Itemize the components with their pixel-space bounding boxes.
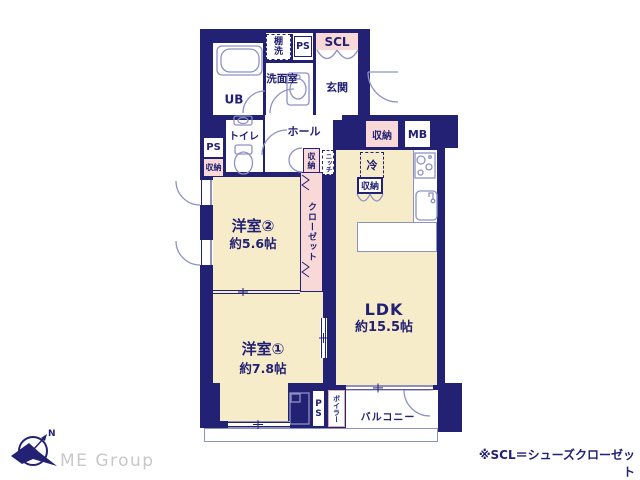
ldk-name: LDK: [365, 301, 404, 319]
shelf-washer-space: 棚 洗: [266, 34, 291, 60]
shelf-label: 棚: [274, 37, 283, 47]
kitchen-counter-return: [357, 222, 437, 252]
compass-n-label: N: [48, 429, 56, 439]
scl-label-box: SCL: [316, 33, 358, 50]
entrance-door-arc: [368, 72, 398, 102]
pipe-space-top: PS: [294, 36, 312, 57]
storage-hall: 収納: [303, 148, 320, 174]
washroom-label: 洗面室: [266, 74, 298, 86]
room-toilet: [226, 120, 263, 172]
hall-label: ホール: [288, 126, 321, 138]
washer-label: 洗: [274, 47, 283, 57]
west-window-arcs: [176, 181, 200, 265]
compass-logo: N: [11, 429, 57, 466]
bedroom2-name: 洋室②: [232, 218, 275, 235]
storage-left: 収納: [203, 158, 224, 177]
toilet-label: トイレ: [229, 132, 259, 143]
ldk-size: 約15.5帖: [355, 321, 413, 335]
unit-bath-label: UB: [225, 93, 244, 106]
pipe-space-left: PS: [203, 137, 224, 158]
storage-kitchen: 収納: [357, 177, 383, 194]
bedroom2-size: 約5.6帖: [229, 237, 276, 251]
balcony-outline: [204, 428, 438, 442]
niche: ニッチ: [322, 150, 334, 175]
boiler: ボイラー: [328, 390, 345, 427]
meter-box: MB: [404, 120, 431, 148]
storage-entrance: 収納: [365, 120, 399, 148]
entrance-label: 玄関: [326, 82, 348, 94]
wall-balcony-pier: [438, 383, 462, 432]
floor-plan: 棚 洗 PS SCL PS 収納 収納 MB 収納 ニッチ 冷 収納 クローゼッ…: [0, 0, 640, 480]
closet: クローゼット: [300, 172, 323, 292]
refrigerator-space: 冷: [360, 152, 384, 178]
balcony-label: バルコニー: [361, 413, 416, 424]
room-bedroom1-lower: [220, 383, 288, 421]
bedroom1-name: 洋室①: [242, 341, 285, 358]
kitchen-counter-strip: [413, 150, 437, 222]
pipe-space-bottom: PS: [312, 390, 325, 427]
logo-text: ME Group: [60, 451, 155, 471]
bedroom1-size: 約7.8帖: [239, 362, 286, 376]
scl-note: ※SCL＝シューズクローゼット: [470, 446, 635, 480]
